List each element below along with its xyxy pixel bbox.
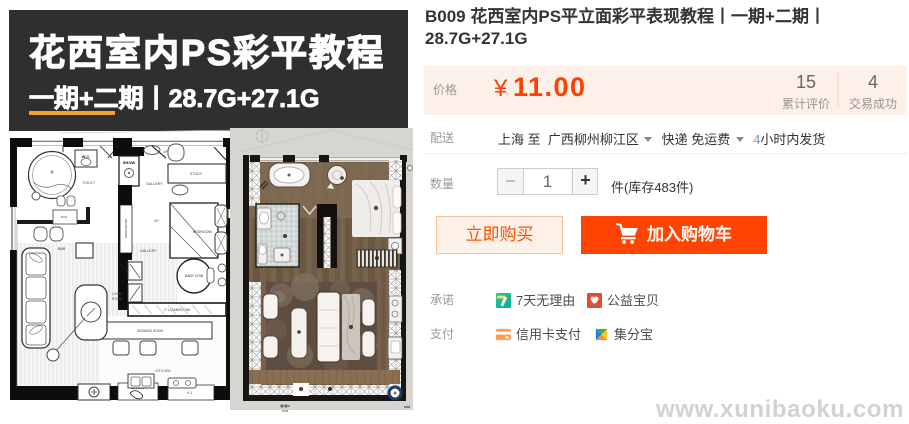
svg-text:BABY CRIB: BABY CRIB	[185, 274, 204, 278]
svg-text:STUDY: STUDY	[190, 172, 203, 176]
svg-text:DRAWING ROOM: DRAWING ROOM	[137, 329, 163, 333]
svg-text:KITCHEN: KITCHEN	[156, 369, 171, 373]
svg-text:LIVING: LIVING	[112, 292, 123, 296]
svg-text:TOILET: TOILET	[82, 181, 96, 185]
svg-text:BEDROOM: BEDROOM	[193, 230, 212, 234]
svg-text:ROOM: ROOM	[112, 297, 122, 301]
svg-text:GALLERY: GALLERY	[146, 182, 163, 186]
svg-text:WOODWORK: WOODWORK	[124, 219, 128, 238]
svg-text:K.1: K.1	[187, 391, 192, 395]
svg-text:SHOW: SHOW	[123, 160, 136, 165]
svg-text:GALLERY: GALLERY	[140, 249, 157, 253]
svg-text:UP: UP	[154, 219, 159, 223]
svg-text:BAR: BAR	[61, 215, 68, 219]
svg-text:BAR: BAR	[58, 247, 66, 251]
svg-text:4ms: 4ms	[282, 409, 289, 413]
